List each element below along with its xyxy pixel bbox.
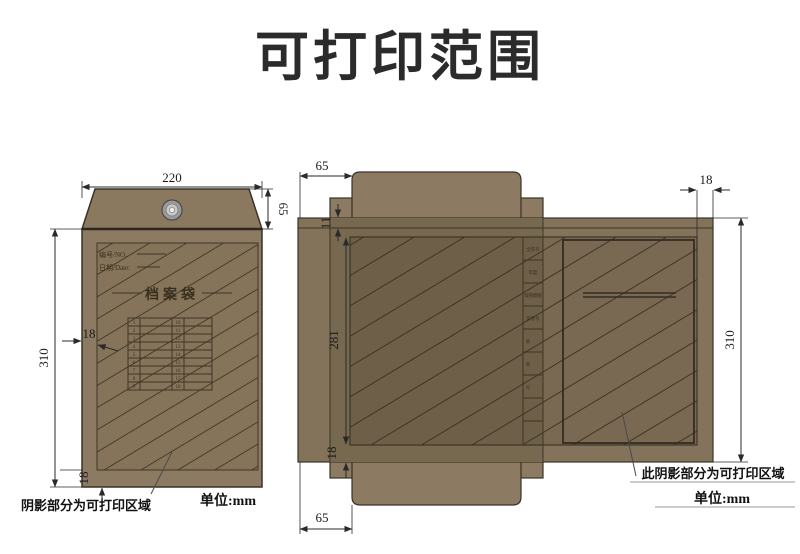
right-note: 此阴影部分为可打印区域 bbox=[641, 466, 784, 481]
dim-label-65: 65 bbox=[276, 203, 291, 216]
dim-label-281: 281 bbox=[326, 330, 341, 350]
dim-label-65-bottom: 65 bbox=[316, 510, 329, 525]
unfolded-bottom-flap bbox=[352, 460, 521, 505]
left-envelope-diagram: 编号/NO. 日期/Date: 档案袋 bbox=[21, 170, 291, 513]
no-label: 编号/NO. bbox=[99, 250, 127, 259]
dimension-height-310: 310 bbox=[36, 229, 82, 487]
right-unit-label: 单位:mm bbox=[694, 490, 750, 507]
left-note: 阴影部分为可打印区域 bbox=[21, 498, 151, 513]
spine-label: 案卷号 bbox=[526, 315, 540, 322]
spine-label: 保管期限 bbox=[524, 292, 542, 299]
dim-label-65-top: 65 bbox=[316, 158, 329, 173]
spine-label: 年度 bbox=[529, 269, 538, 276]
dim-label-220: 220 bbox=[162, 170, 182, 185]
dim-label-11: 11 bbox=[318, 217, 333, 230]
dim-label-18-left: 18 bbox=[83, 326, 96, 341]
diagram-canvas: 编号/NO. 日期/Date: 档案袋 bbox=[0, 0, 800, 554]
left-unit-label: 单位:mm bbox=[200, 492, 256, 509]
table-number: 18 bbox=[176, 385, 182, 390]
spine-label: 第 bbox=[526, 338, 531, 345]
dim-label-310-right: 310 bbox=[722, 330, 737, 350]
grommet-icon bbox=[162, 200, 182, 220]
table-number: 16 bbox=[176, 369, 182, 374]
date-label: 日期/Date: bbox=[99, 264, 130, 272]
table-number: 10 bbox=[176, 321, 182, 326]
dim-label-18-bottom-right: 18 bbox=[324, 447, 339, 460]
dim-label-18-right: 18 bbox=[700, 172, 713, 187]
printable-area-figure: 可打印范围 bbox=[0, 0, 800, 554]
dim-label-18-bottom: 18 bbox=[76, 472, 91, 485]
dimension-height-310-right: 310 bbox=[713, 218, 748, 462]
table-number: 17 bbox=[176, 377, 182, 382]
unfolded-top-flap bbox=[352, 172, 521, 220]
table-number: 13 bbox=[176, 345, 182, 350]
dim-label-310: 310 bbox=[36, 348, 51, 368]
spine-label: 卷 bbox=[526, 361, 531, 367]
table-number: 14 bbox=[176, 353, 182, 358]
spine-label: 全宗号 bbox=[526, 246, 540, 253]
table-number: 11 bbox=[176, 329, 181, 334]
unfolded-envelope-diagram: 全宗号 年度 保管期限 案卷号 第 卷 号 65 bbox=[298, 158, 795, 534]
table-number: 12 bbox=[176, 337, 182, 342]
bag-title: 档案袋 bbox=[145, 286, 199, 303]
table-number: 15 bbox=[176, 361, 182, 366]
